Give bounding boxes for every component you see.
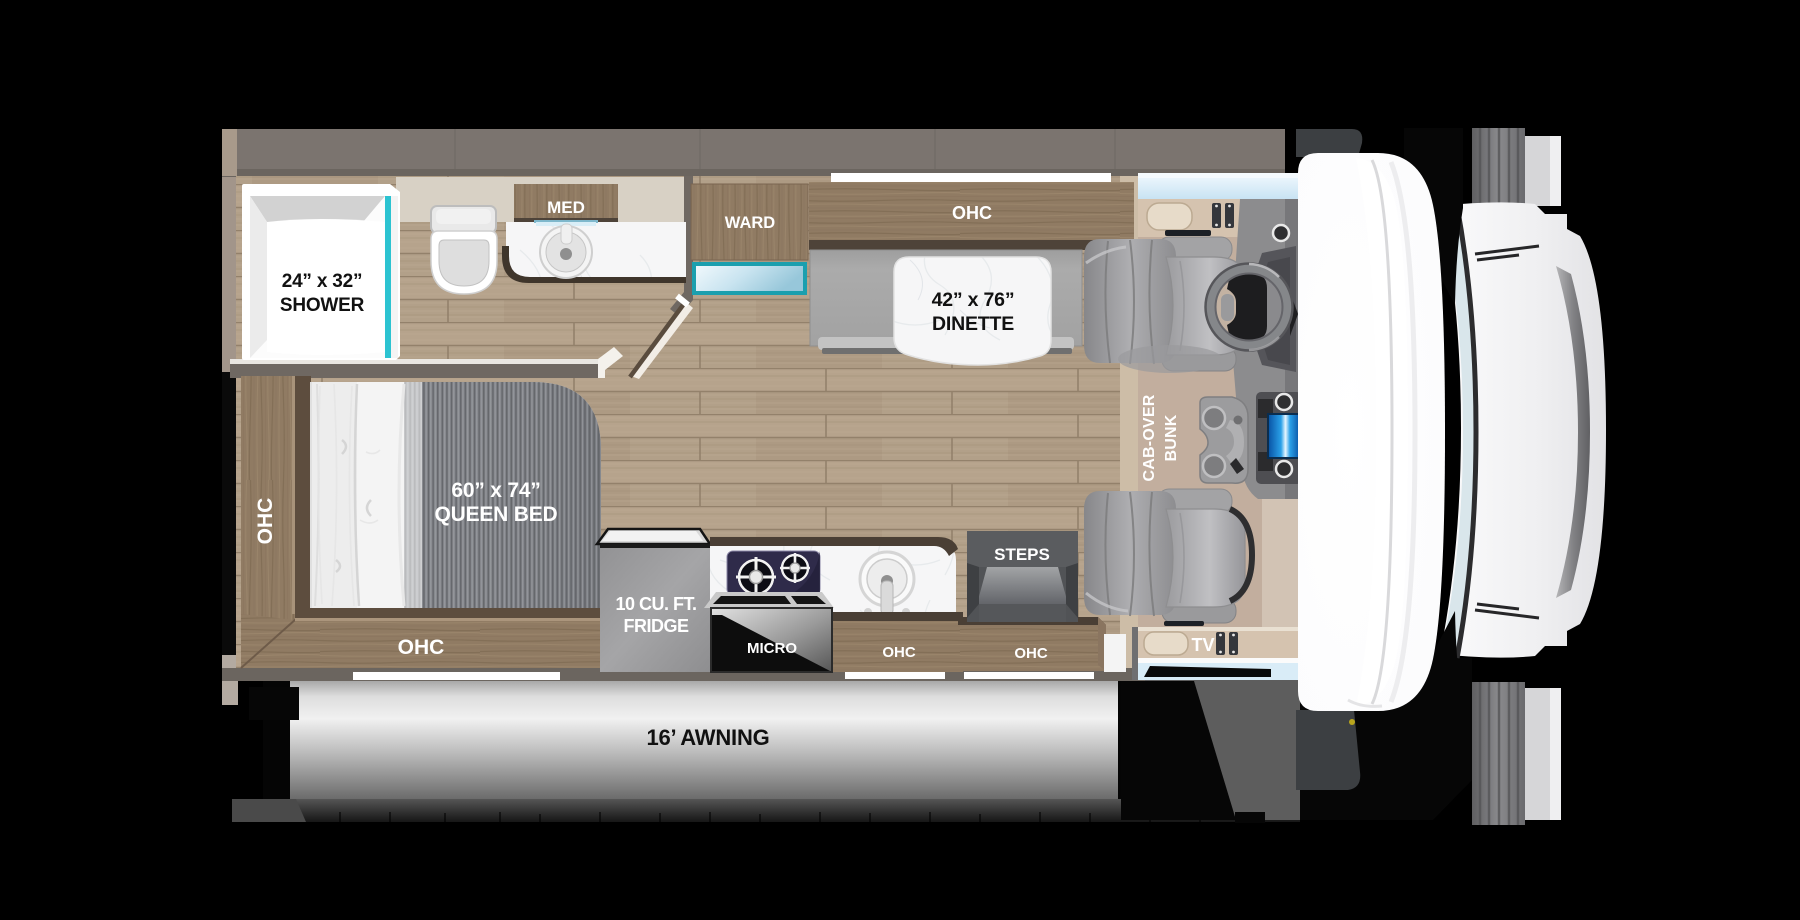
svg-text:OHC: OHC [882,644,916,661]
svg-text:16’ AWNING: 16’ AWNING [646,725,769,750]
svg-text:MED: MED [547,198,585,217]
svg-text:42” x 76”: 42” x 76” [932,289,1015,311]
svg-text:BUNK: BUNK [1163,414,1180,461]
svg-text:CAB-OVER: CAB-OVER [1141,394,1158,481]
svg-text:OHC: OHC [1014,645,1048,662]
svg-text:OHC: OHC [254,498,277,545]
svg-text:60” x 74”: 60” x 74” [451,479,540,502]
svg-text:OHC: OHC [398,636,445,659]
svg-text:SHOWER: SHOWER [280,295,365,316]
svg-text:FRIDGE: FRIDGE [623,616,688,636]
svg-text:STEPS: STEPS [994,545,1050,564]
svg-text:QUEEN BED: QUEEN BED [434,503,557,526]
svg-text:10 CU. FT.: 10 CU. FT. [615,594,696,614]
svg-text:DINETTE: DINETTE [932,313,1014,335]
svg-text:MICRO: MICRO [747,640,797,657]
svg-text:TV: TV [1191,635,1214,655]
svg-text:WARD: WARD [725,214,775,232]
svg-text:24” x 32”: 24” x 32” [282,271,363,292]
svg-text:OHC: OHC [952,203,992,223]
